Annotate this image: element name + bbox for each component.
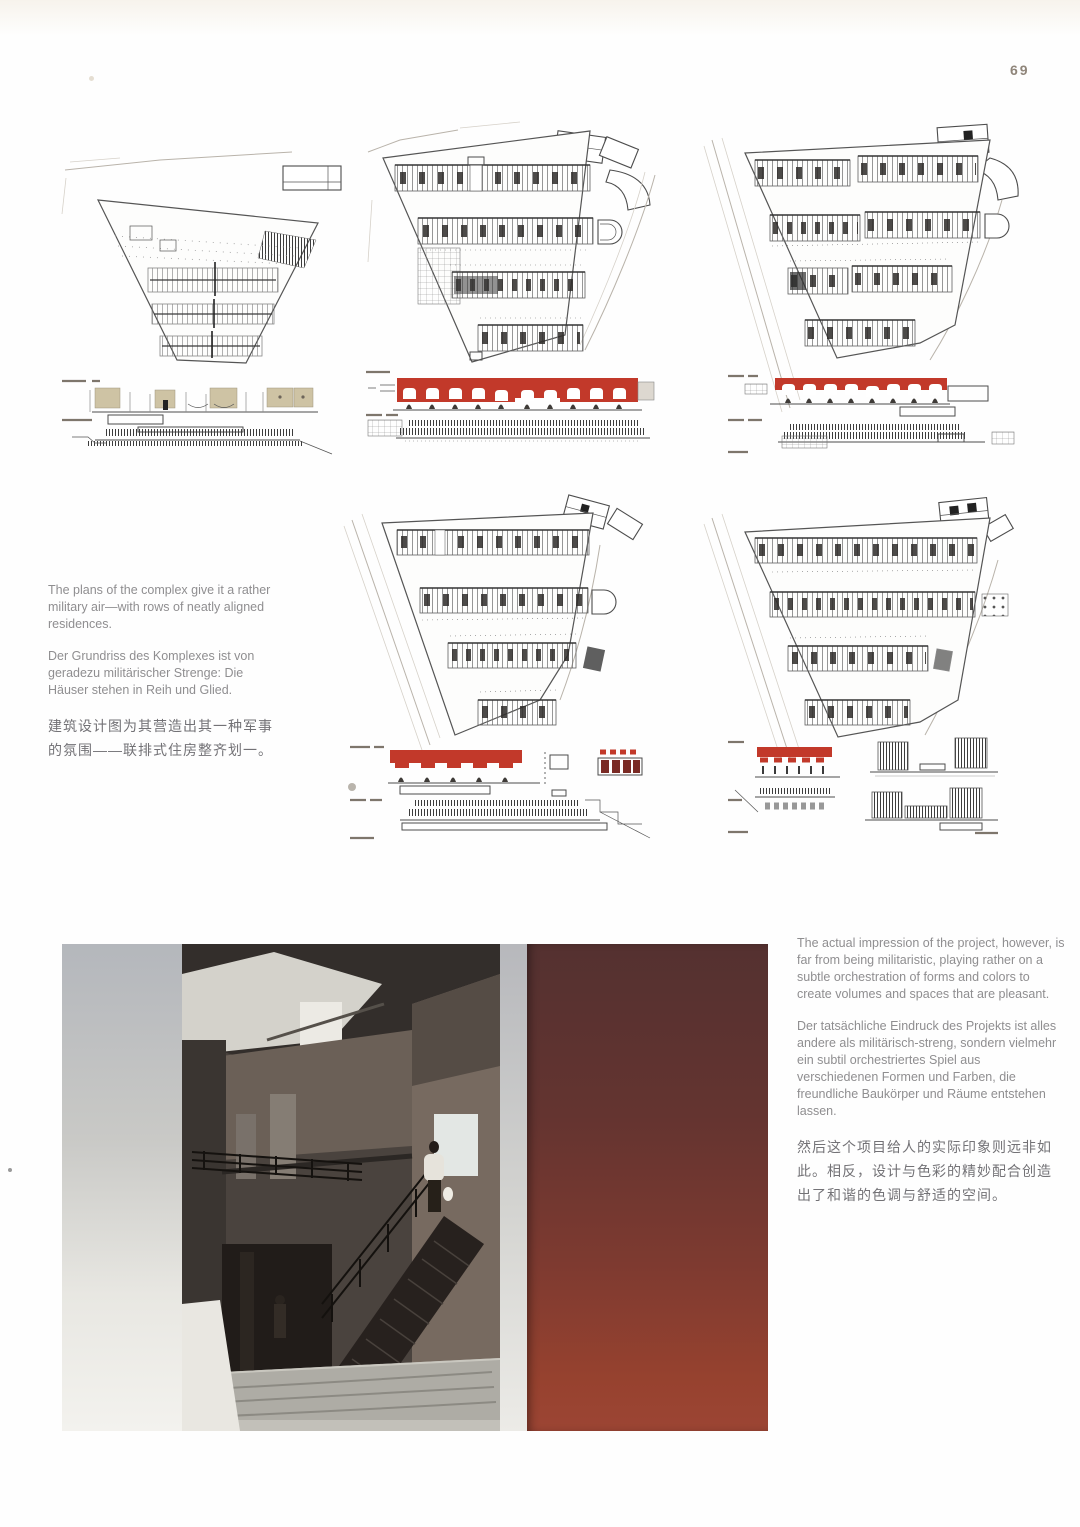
figure-plan-a: [62, 152, 341, 454]
photo-red-wall: [527, 944, 768, 1431]
photo-corner-pillar: [500, 944, 527, 1431]
figure-elevation-c: [728, 376, 988, 416]
figure-section-c: [728, 420, 1014, 452]
caption-right-chinese: 然后这个项目给人的实际印象则远非如此。相反，设计与色彩的精妙配合创造出了和谐的色…: [797, 1135, 1065, 1207]
caption-left-english: The plans of the complex give it a rathe…: [48, 582, 285, 633]
scan-speck: [89, 76, 94, 81]
page-number: 69: [1010, 62, 1030, 78]
figure-red-detail-d: [598, 752, 642, 775]
caption-left-chinese: 建筑设计图为其营造出其一种军事的氛围——联排式住房整齐划一。: [48, 714, 285, 762]
figure-elevation-a: [62, 381, 332, 454]
scan-edge-tint: [0, 0, 1080, 40]
caption-left: The plans of the complex give it a rathe…: [48, 582, 285, 777]
book-page: 69 The plans of the complex give it a ra…: [0, 0, 1080, 1527]
figure-plan-c: [704, 124, 1018, 452]
figure-plan-e: [704, 498, 1013, 833]
photo-left-wall: [62, 944, 186, 1431]
figure-elevation-d: [348, 747, 568, 796]
caption-right-english: The actual impression of the project, ho…: [797, 935, 1065, 1003]
figure-elevation-e: [728, 742, 840, 832]
caption-left-german: Der Grundriss des Komplexes ist von gera…: [48, 648, 285, 699]
caption-right: The actual impression of the project, ho…: [797, 935, 1065, 1222]
photo-distant-figure: [274, 1295, 286, 1338]
photo-stairwell: [62, 944, 768, 1431]
caption-right-german: Der tatsächliche Eindruck des Projekts i…: [797, 1018, 1065, 1120]
figure-plan-b: [366, 122, 655, 441]
figure-section-d: [350, 800, 650, 838]
scan-speck: [8, 1168, 12, 1172]
figure-elevation-b: [366, 372, 654, 410]
photo-interior-scene: [182, 944, 500, 1431]
figure-plan-d: [344, 495, 650, 838]
figure-section-details-e: [865, 738, 998, 833]
figure-section-b: [366, 415, 650, 441]
